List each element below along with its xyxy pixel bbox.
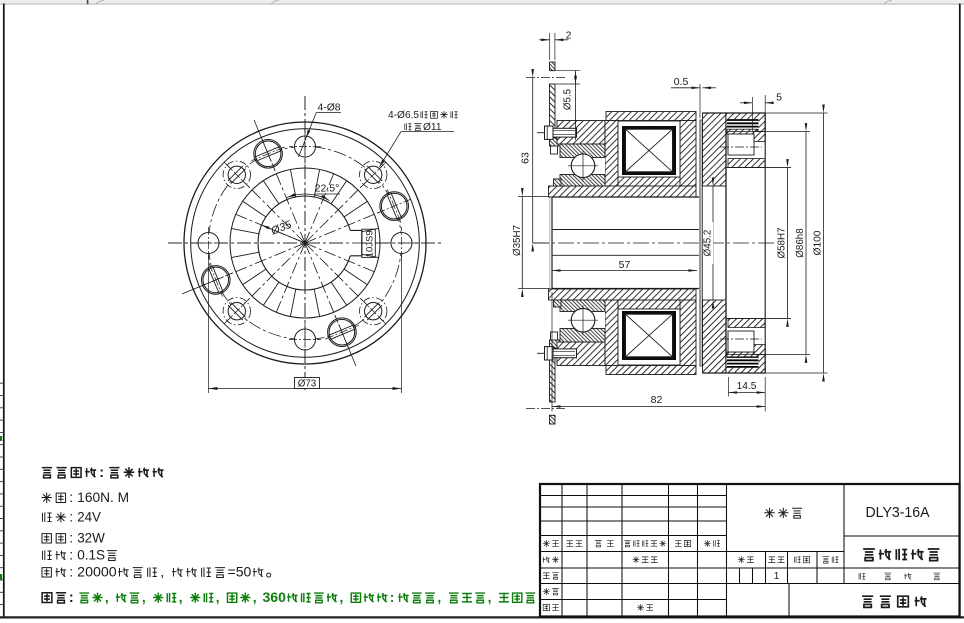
svg-text::: : [99,465,104,481]
svg-text:57: 57 [619,259,631,271]
svg-text:22.5°: 22.5° [315,183,340,195]
svg-text:,: , [105,590,109,605]
svg-text::: : [69,509,73,525]
svg-text:4-Ø6.5: 4-Ø6.5 [388,110,420,121]
svg-text:,: , [179,590,183,605]
svg-text:,: , [488,590,492,605]
svg-text:Ø35H7: Ø35H7 [512,225,523,256]
svg-text:32W: 32W [77,531,105,546]
svg-text:Ø100: Ø100 [813,230,824,255]
svg-text:1: 1 [774,571,780,582]
svg-text:Ø45.2: Ø45.2 [703,230,714,257]
svg-text::: : [69,530,73,546]
svg-text:160N. M: 160N. M [77,490,129,505]
svg-text::: : [390,590,395,605]
svg-text:24V: 24V [77,510,102,525]
svg-text:,: , [437,590,441,605]
svg-text:DLY3-16A: DLY3-16A [866,504,931,521]
svg-text:4-Ø8: 4-Ø8 [318,102,341,114]
svg-text:2: 2 [566,30,572,42]
svg-text::: : [69,489,73,505]
svg-text:Ø58H7: Ø58H7 [777,227,788,258]
svg-text:,: , [253,590,257,605]
svg-text::: : [69,564,73,580]
svg-text:5: 5 [776,92,782,104]
svg-text:Ø86h8: Ø86h8 [795,228,806,258]
svg-text:Ø5.5: Ø5.5 [563,88,574,110]
svg-text:,: , [216,590,220,605]
svg-text:20000: 20000 [77,565,117,580]
svg-text:,: , [142,590,146,605]
svg-text:82: 82 [651,394,663,406]
svg-text:Ø73: Ø73 [298,378,317,389]
svg-text:14.5: 14.5 [737,381,757,392]
svg-text:,: , [160,564,164,580]
svg-text:360: 360 [263,590,286,605]
svg-text:,: , [340,590,344,605]
svg-text:=50: =50 [228,565,252,580]
svg-text::: : [69,590,74,606]
svg-text::: : [69,547,73,563]
svg-text:0.1S: 0.1S [77,548,105,563]
svg-text:0.5: 0.5 [674,76,689,88]
svg-text:10JS9: 10JS9 [364,230,375,257]
svg-text:63: 63 [520,152,532,164]
